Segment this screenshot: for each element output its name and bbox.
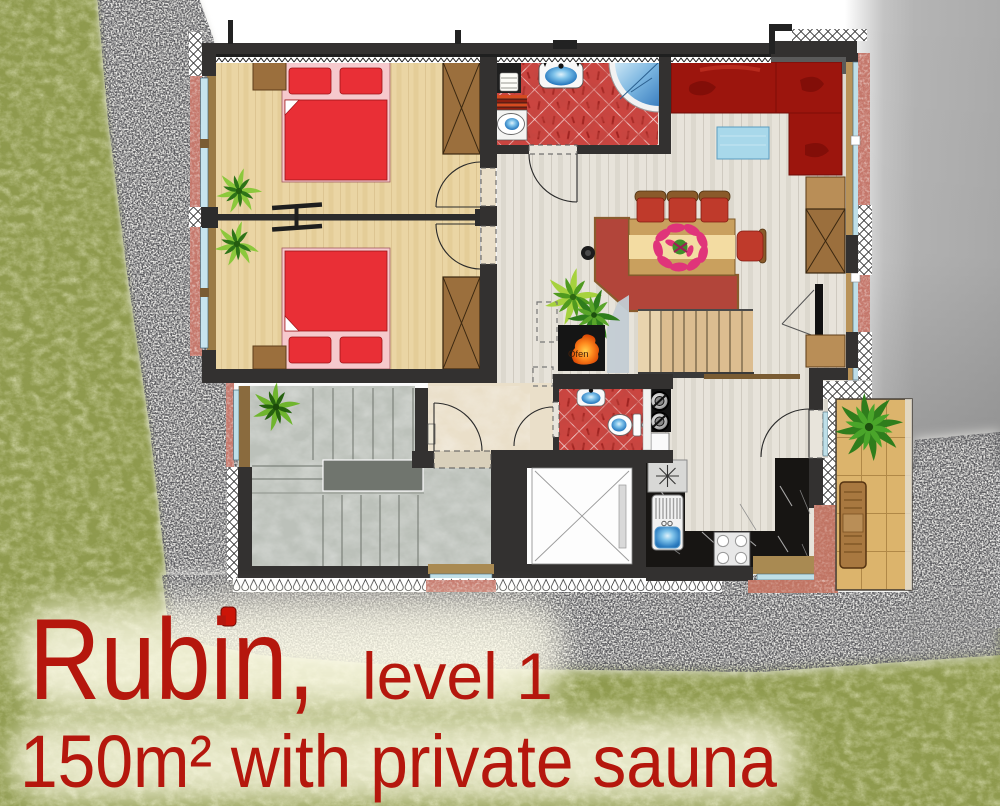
svg-text:Rubin,: Rubin,	[29, 596, 315, 724]
svg-text:150m² with private sauna: 150m² with private sauna	[20, 720, 778, 803]
svg-text:level 1: level 1	[362, 639, 553, 713]
svg-text:Ofen: Ofen	[568, 349, 589, 360]
